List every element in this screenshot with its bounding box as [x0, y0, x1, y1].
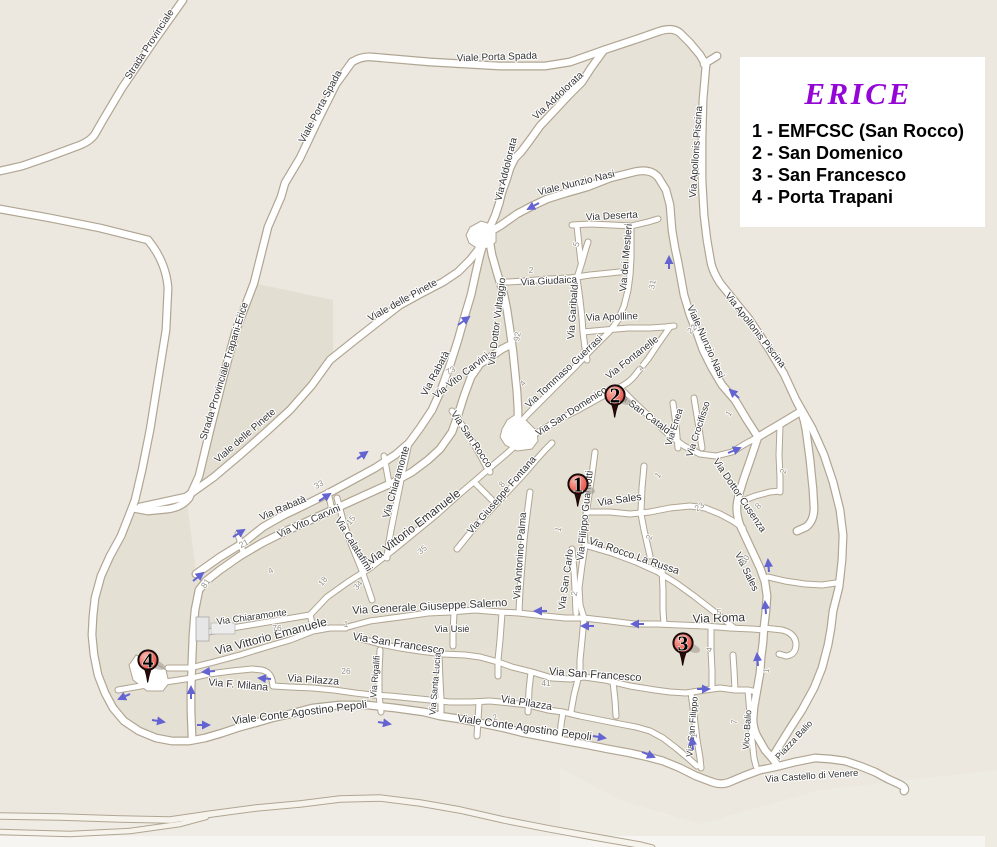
svg-text:2: 2 [529, 265, 534, 275]
svg-text:26: 26 [341, 666, 351, 676]
svg-text:1: 1 [344, 619, 349, 629]
svg-text:ERICE: ERICE [803, 76, 911, 111]
svg-text:2 - San Domenico: 2 - San Domenico [752, 143, 903, 163]
svg-text:4: 4 [143, 648, 154, 672]
svg-text:Via Usiè: Via Usiè [434, 624, 469, 635]
svg-text:3 - San Francesco: 3 - San Francesco [752, 165, 906, 185]
svg-text:5: 5 [717, 607, 722, 617]
svg-text:1 - EMFCSC (San Rocco): 1 - EMFCSC (San Rocco) [752, 121, 964, 141]
svg-text:4 - Porta Trapani: 4 - Porta Trapani [752, 187, 893, 207]
svg-text:41: 41 [541, 678, 551, 688]
svg-text:76: 76 [272, 623, 282, 633]
svg-text:Via Apolline: Via Apolline [586, 311, 639, 324]
svg-text:92: 92 [511, 331, 523, 342]
svg-text:3: 3 [678, 631, 689, 655]
svg-text:31: 31 [646, 279, 658, 290]
svg-text:2: 2 [610, 383, 621, 407]
svg-text:1: 1 [573, 472, 584, 496]
